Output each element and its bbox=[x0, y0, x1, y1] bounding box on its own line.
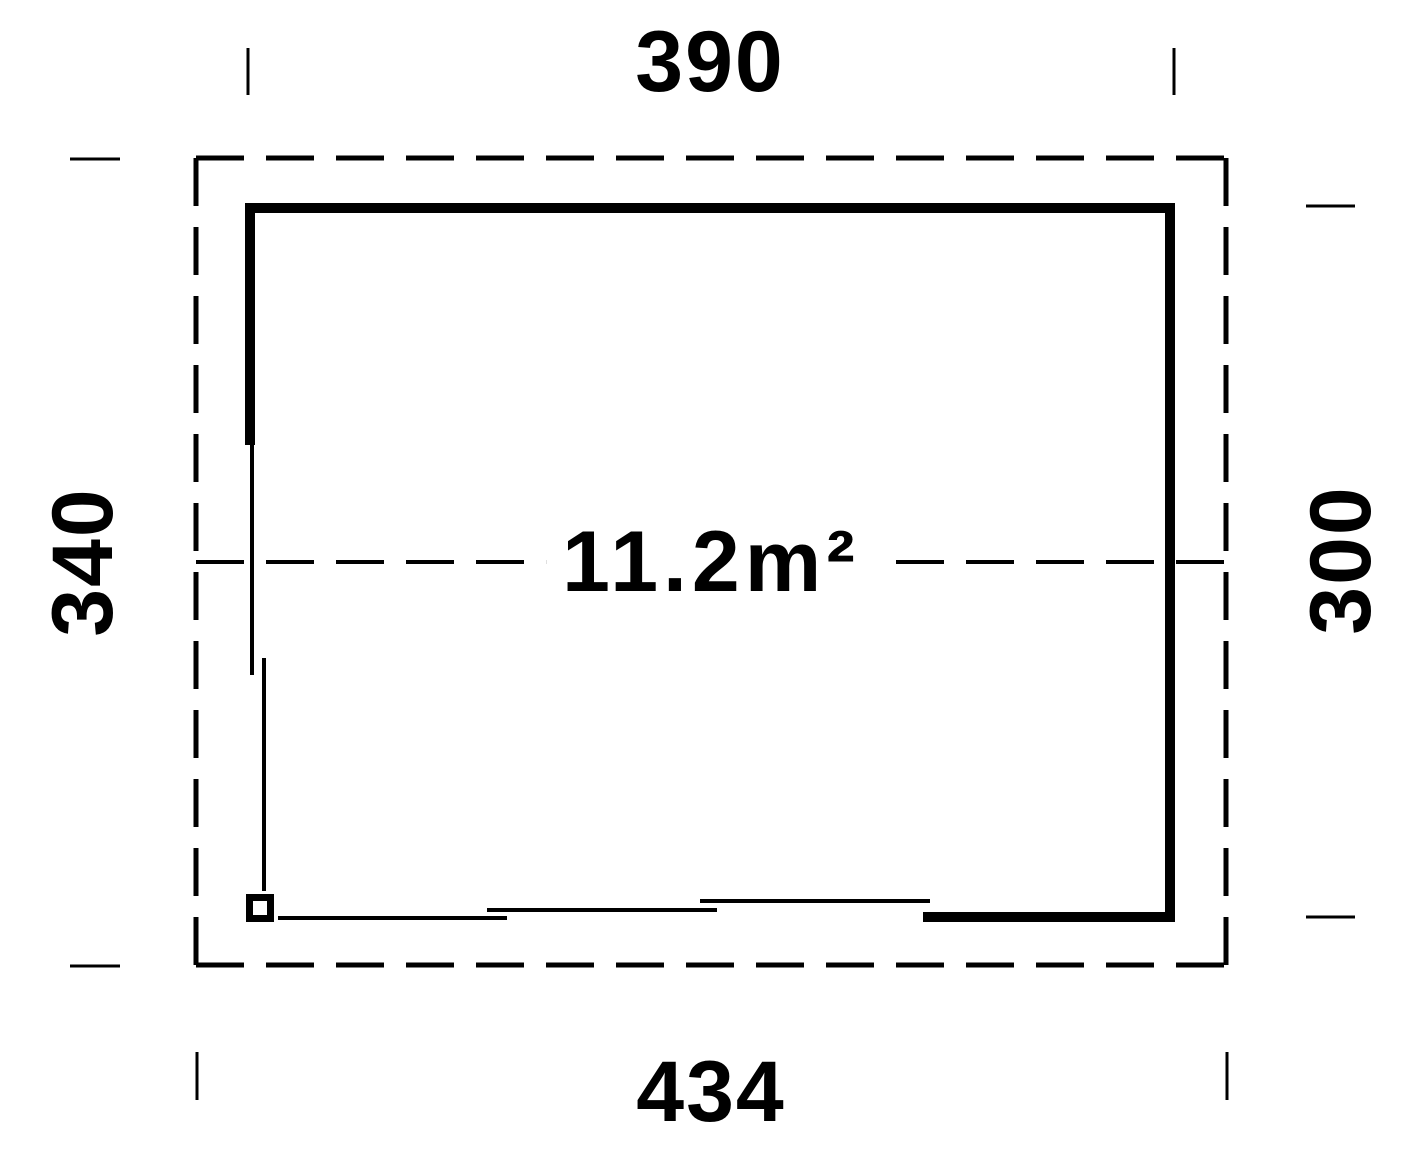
dimension-label-left-height: 340 bbox=[40, 487, 126, 637]
area-label: 11.2m² bbox=[546, 519, 876, 605]
floorplan-canvas: 390 340 300 434 11.2m² bbox=[0, 0, 1419, 1162]
dimension-label-top-width: 390 bbox=[635, 19, 785, 105]
dimension-label-right-height: 300 bbox=[1298, 485, 1384, 635]
dimension-label-bottom-width: 434 bbox=[636, 1049, 786, 1135]
corner-post bbox=[250, 898, 271, 919]
